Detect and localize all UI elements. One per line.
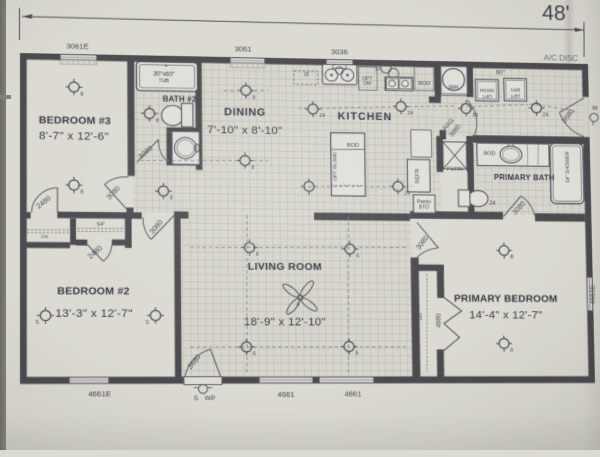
svg-text:BTO: BTO: [419, 205, 429, 211]
svg-text:4661E: 4661E: [88, 390, 111, 399]
svg-text:3080: 3080: [147, 218, 164, 236]
svg-text:4661: 4661: [344, 389, 361, 398]
svg-text:13: 13: [375, 67, 381, 73]
svg-text:S: S: [35, 320, 39, 326]
svg-text:BOD: BOD: [347, 143, 359, 149]
svg-text:13'-3" x 12'-7": 13'-3" x 12'-7": [55, 308, 132, 320]
svg-text:4661: 4661: [277, 390, 294, 399]
svg-text:7'-10" x 8'-10": 7'-10" x 8'-10": [207, 124, 282, 137]
svg-text:8: 8: [510, 255, 513, 261]
svg-text:DW: DW: [363, 81, 372, 87]
svg-text:54": 54": [97, 222, 105, 228]
svg-text:24: 24: [543, 112, 549, 118]
svg-text:LIVING ROOM: LIVING ROOM: [248, 262, 322, 273]
svg-text:TUB: TUB: [159, 78, 170, 84]
svg-text:8'-7" x 12'-6": 8'-7" x 12'-6": [39, 130, 109, 143]
svg-text:14'-4" x 12'-7": 14'-4" x 12'-7": [469, 310, 542, 322]
svg-text:30"x60": 30"x60": [153, 71, 175, 78]
svg-text:3080: 3080: [414, 234, 431, 252]
svg-text:24: 24: [407, 111, 413, 117]
svg-text:BATH #2: BATH #2: [163, 94, 197, 103]
svg-text:8: 8: [510, 348, 513, 354]
svg-text:104": 104": [418, 311, 424, 321]
svg-text:8: 8: [156, 118, 159, 124]
svg-text:24: 24: [489, 201, 496, 207]
svg-text:6: 6: [256, 252, 259, 258]
svg-text:18: 18: [303, 72, 309, 78]
svg-text:24: 24: [404, 191, 410, 197]
svg-text:BOD: BOD: [418, 81, 430, 87]
svg-text:FURN: FURN: [447, 167, 463, 173]
svg-text:8: 8: [251, 165, 254, 171]
svg-text:REFR: REFR: [415, 169, 421, 184]
svg-text:6: 6: [356, 253, 359, 259]
svg-text:WP: WP: [205, 395, 216, 402]
svg-text:24: 24: [472, 113, 478, 119]
svg-text:4880: 4880: [435, 313, 442, 328]
svg-text:BEDROOM #2: BEDROOM #2: [57, 286, 129, 297]
svg-text:S: S: [145, 320, 149, 326]
svg-text:24s: 24s: [41, 234, 49, 239]
svg-text:8: 8: [80, 189, 83, 195]
svg-text:3061E: 3061E: [66, 42, 89, 51]
svg-text:BOD: BOD: [484, 151, 496, 157]
svg-text:DRY: DRY: [510, 86, 521, 92]
svg-text:OPT: OPT: [510, 92, 520, 98]
svg-text:S: S: [194, 395, 199, 402]
svg-text:KITCHEN: KITCHEN: [338, 111, 393, 123]
svg-text:OPT ISLAND: OPT ISLAND: [332, 152, 338, 181]
svg-text:WASH: WASH: [479, 87, 494, 93]
svg-text:PRIMARY BATH: PRIMARY BATH: [494, 173, 555, 182]
svg-text:PRIMARY BEDROOM: PRIMARY BEDROOM: [454, 294, 558, 305]
svg-text:DINING: DINING: [224, 106, 266, 118]
svg-text:18'-9" x 12'-10": 18'-9" x 12'-10": [244, 317, 326, 329]
svg-text:6: 6: [253, 351, 256, 357]
svg-text:6: 6: [355, 351, 358, 357]
svg-text:WH: WH: [449, 86, 459, 92]
svg-text:OPT: OPT: [482, 93, 492, 99]
svg-text:54" SHOWER: 54" SHOWER: [565, 151, 571, 182]
svg-text:6: 6: [297, 302, 300, 308]
svg-text:BEDROOM #3: BEDROOM #3: [39, 115, 111, 127]
svg-text:8: 8: [80, 91, 83, 97]
svg-text:W: W: [592, 105, 598, 112]
svg-text:24: 24: [319, 113, 325, 119]
svg-text:3036: 3036: [331, 47, 348, 56]
svg-text:60": 60": [496, 71, 505, 77]
svg-text:2480: 2480: [34, 194, 53, 211]
svg-text:8: 8: [170, 195, 173, 201]
svg-text:8: 8: [252, 95, 255, 101]
svg-text:4661E: 4661E: [589, 284, 596, 304]
svg-text:3061: 3061: [235, 45, 252, 54]
